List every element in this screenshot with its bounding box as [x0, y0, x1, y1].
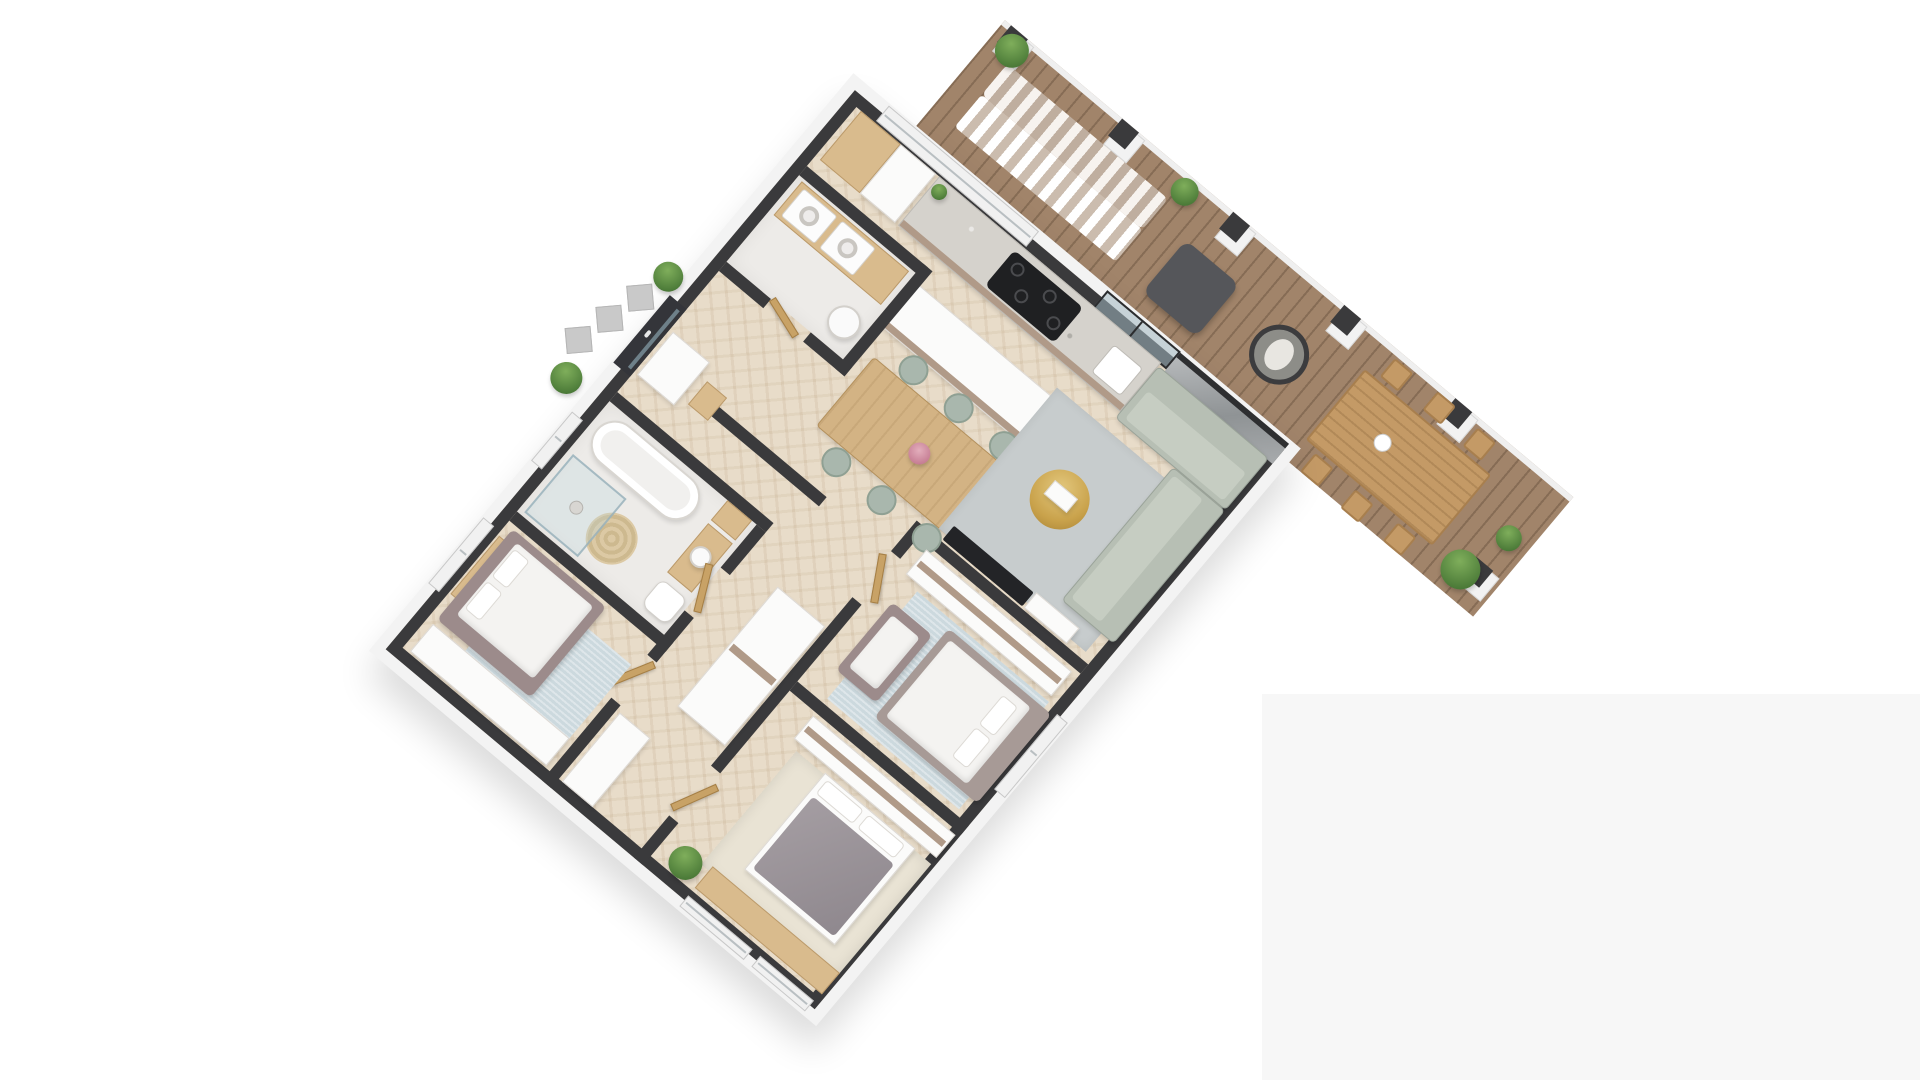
floor-plan-render [0, 0, 1920, 1080]
entry-paver [595, 305, 623, 333]
entry-paver [626, 284, 654, 312]
entry-plant [544, 355, 589, 400]
entry-paver [565, 326, 593, 354]
